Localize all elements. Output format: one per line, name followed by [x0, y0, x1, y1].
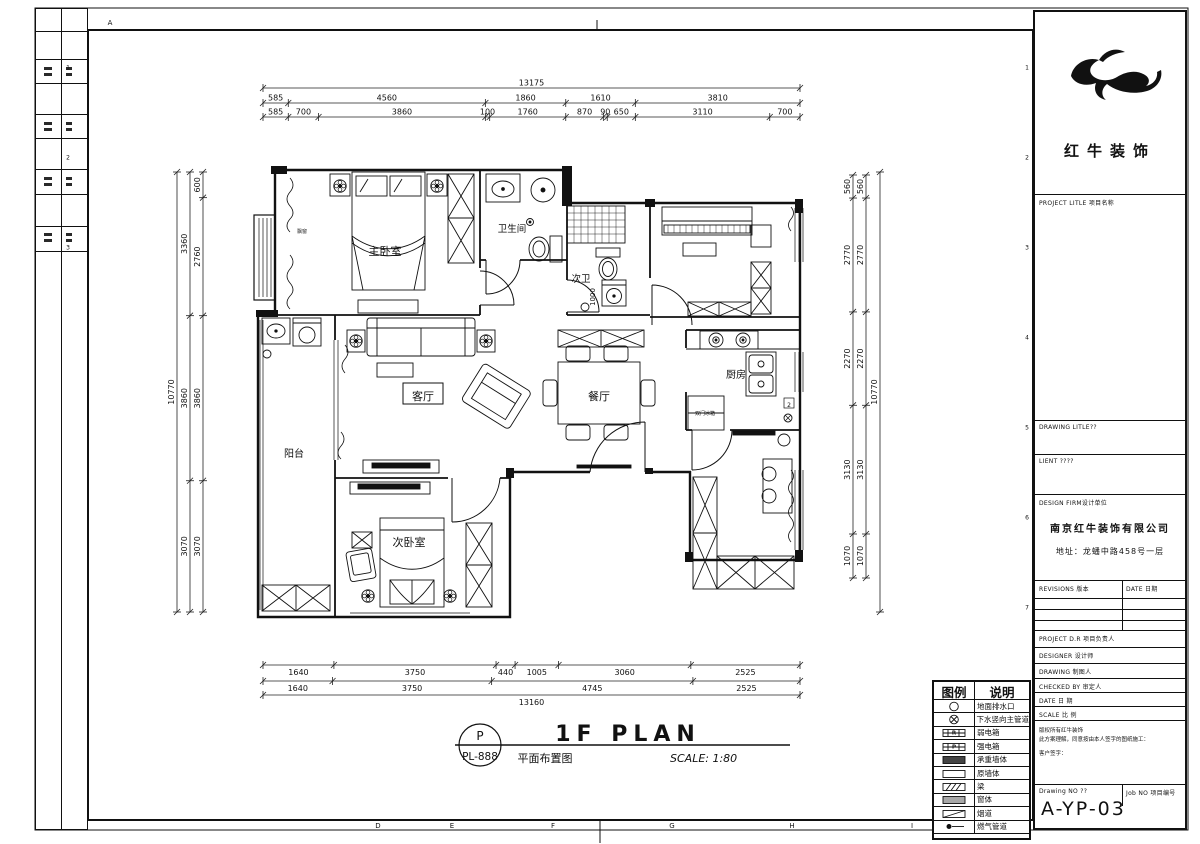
legend-row: 下水竖向主管道: [934, 713, 1029, 726]
dim-label: 10770: [167, 379, 176, 404]
shower-area: [567, 206, 625, 243]
legend-row: R弱电箱: [934, 727, 1029, 740]
dim-label: 1640: [288, 684, 308, 693]
terms-line-3: 客户签字：: [1039, 749, 1067, 757]
firm-address: 地址：龙蟠中路458号一层: [1035, 546, 1185, 557]
grid-letter-bottom: E: [450, 822, 454, 830]
title-block: 红牛装饰 PROJECT LITLE 项目名称 DRAWING LITLE?? …: [1033, 10, 1187, 830]
plan-title-en: 1F PLAN: [555, 722, 701, 747]
grid-number-right: 7: [1025, 605, 1029, 612]
legend-symbol-pipe-icon: [934, 713, 975, 725]
grid-number-right: 6: [1025, 515, 1029, 522]
drawing-no-label: Drawing NO ??: [1039, 788, 1087, 795]
tv-cabinet-living: [363, 460, 439, 473]
legend-row: 燃气管道: [934, 821, 1029, 834]
client-label: LIENT ????: [1039, 458, 1074, 465]
terms-line-1: 版权所有红牛装饰: [1039, 726, 1083, 734]
dim-label: 1070: [856, 546, 865, 566]
dim-label: 2270: [843, 348, 852, 368]
legend-label: 承重墙体: [975, 754, 1029, 765]
grid-letter-bottom: H: [789, 822, 794, 830]
grid-letter-top: A: [108, 19, 113, 27]
svg-text:P: P: [952, 744, 956, 750]
revisions-label: REVISIONS 版本: [1039, 584, 1089, 593]
armchair-2: [346, 548, 377, 582]
dim-label: 585: [268, 108, 283, 117]
legend-label: 原墙体: [975, 768, 1029, 779]
grid-letter-bottom: D: [375, 822, 380, 830]
dim-label: 3130: [843, 459, 852, 479]
daybed: [662, 207, 752, 235]
legend-label: 烟道: [975, 808, 1029, 819]
dim-label: 1610: [590, 94, 610, 103]
room-label: 卫生间: [498, 223, 527, 235]
grid-number-right: 5: [1025, 425, 1029, 432]
firm-name: 南京红牛装饰有限公司: [1035, 520, 1185, 535]
room-label: 餐厅: [588, 389, 610, 403]
room-label: 次卧室: [393, 535, 426, 549]
dim-label: 700: [777, 108, 792, 117]
plan-code-top: P: [476, 729, 483, 743]
dim-label: 650: [614, 108, 629, 117]
plan-annotation: 1000: [589, 288, 597, 306]
drawing-person-label: DRAWING 制图人: [1039, 667, 1091, 676]
dim-label: 1640: [288, 668, 308, 677]
room-label: 客厅: [412, 389, 434, 403]
legend-label: 强电箱: [975, 741, 1029, 752]
dim-label: 1860: [515, 94, 535, 103]
legend-header: 图例 说明: [934, 682, 1029, 700]
grid-number-right: 2: [1025, 155, 1029, 162]
dim-label: 3110: [692, 108, 712, 117]
legend-label: 地面排水口: [975, 701, 1029, 712]
dim-label: 3070: [193, 536, 202, 556]
drawing-number: A-YP-03: [1041, 798, 1126, 820]
plan-annotation: 双门冰箱: [695, 410, 715, 417]
svg-text:R: R: [952, 731, 957, 737]
legend-col-desc: 说明: [975, 682, 1029, 699]
grid-number-left: 1: [66, 65, 70, 72]
dim-label: 3860: [392, 108, 412, 117]
dim-label: 4745: [582, 684, 602, 693]
dim-label: 3810: [707, 94, 727, 103]
dim-label: 3860: [193, 388, 202, 408]
dim-label: 2770: [843, 245, 852, 265]
plan-scale: SCALE: 1:80: [670, 752, 737, 765]
washing-machine-2: [602, 280, 626, 306]
dim-label: 2270: [856, 348, 865, 368]
legend-row: 承重墙体: [934, 754, 1029, 767]
dim-label: 1070: [843, 546, 852, 566]
legend-symbol-solid-icon: [934, 754, 975, 766]
legend-symbol-win-icon: [934, 794, 975, 806]
dim-label: 1760: [518, 108, 538, 117]
dim-label: 2760: [193, 246, 202, 266]
dim-label: 13160: [519, 698, 544, 707]
checked-by-label: CHECKED BY 审定人: [1039, 682, 1102, 691]
plan-annotation: 飘窗: [297, 228, 307, 235]
drawing-title-label: DRAWING LITLE??: [1039, 424, 1097, 431]
legend-symbol-gas-icon: [934, 821, 975, 833]
grid-letter-bottom: F: [551, 822, 555, 830]
legend-row: 原墙体: [934, 767, 1029, 780]
master-bed: [352, 172, 425, 290]
grid-number-left: 3: [66, 245, 70, 252]
legend-label: 弱电箱: [975, 727, 1029, 738]
grid-number-right: 1: [1025, 65, 1029, 72]
dim-label: 560: [856, 179, 865, 194]
legend-row: 烟道: [934, 807, 1029, 820]
dim-label: 13175: [519, 79, 544, 88]
drawing-sheet: 1317558545601860161038105857003860100176…: [0, 0, 1200, 844]
legend-symbol-drain-icon: [934, 700, 975, 712]
legend-symbol-weak-icon: R: [934, 727, 975, 739]
dim-label: 100: [480, 108, 495, 117]
dim-label: 3750: [405, 668, 425, 677]
hall-cabinet: [558, 330, 644, 347]
date-label: DATE 日 期: [1039, 696, 1073, 705]
terms-line-2: 此方案理解，同意按由本人签字的图纸施工：: [1039, 735, 1149, 743]
grid-number-right: 3: [1025, 245, 1029, 252]
dim-label: 2525: [736, 684, 756, 693]
designer-label: DESIGNER 设计师: [1039, 651, 1094, 660]
company-name: 红牛装饰: [1035, 140, 1185, 161]
dim-label: 4560: [377, 94, 397, 103]
dim-label: 3360: [180, 234, 189, 254]
dim-label: 600: [193, 177, 202, 192]
bathroom-fixtures: [486, 174, 562, 262]
legend-symbol-strong-icon: P: [934, 740, 975, 752]
project-title-label: PROJECT LITLE 项目名称: [1039, 198, 1114, 207]
side-table-2: [352, 532, 372, 548]
legend-table: 图例 说明 地面排水口下水竖向主管道R弱电箱P强电箱承重墙体原墙体梁窗体烟道燃气…: [932, 680, 1031, 840]
dim-label: 870: [577, 108, 592, 117]
legend-label: 梁: [975, 781, 1029, 792]
dim-label: 700: [296, 108, 311, 117]
dim-label: 440: [498, 668, 513, 677]
plan-code-bottom: PL-888: [462, 751, 498, 763]
wardrobe-topright: [688, 262, 771, 316]
wardrobe-master: [448, 174, 474, 263]
legend-row: 地面排水口: [934, 700, 1029, 713]
legend-label: 下水竖向主管道: [975, 714, 1030, 725]
floor-drain: [263, 350, 271, 358]
dim-label: 3130: [856, 459, 865, 479]
sewer-pipe-symbol: [784, 414, 792, 422]
exterior-walls: [258, 170, 800, 617]
coffee-table: [377, 363, 413, 377]
legend-symbol-beam-icon: [934, 780, 975, 792]
dim-label: 3860: [180, 388, 189, 408]
armchair: [461, 363, 532, 430]
dim-label: 560: [843, 179, 852, 194]
bed-2: [380, 518, 444, 607]
legend-row: 梁: [934, 780, 1029, 793]
legend-label: 窗体: [975, 794, 1029, 805]
dim-label: 1005: [527, 668, 547, 677]
dim-label: 2770: [856, 245, 865, 265]
job-no-label: Job NO 项目编号: [1126, 788, 1176, 797]
dim-label: 3060: [614, 668, 634, 677]
scale-label: SCALE 比 例: [1039, 710, 1077, 719]
legend-row: P强电箱: [934, 740, 1029, 753]
design-firm-label: DESIGN FIRM设计单位: [1039, 498, 1107, 507]
room-label: 主卧室: [369, 244, 402, 258]
plan-annotation: 2: [787, 402, 791, 409]
dresser: [358, 300, 418, 313]
dim-label: 2525: [735, 668, 755, 677]
revisions-date-label: DATE 日期: [1126, 584, 1158, 593]
balcony-fixtures: [262, 318, 330, 611]
toilet-2: [596, 248, 620, 280]
room-label: 厨房: [726, 368, 746, 381]
sofa: [367, 318, 475, 356]
legend-symbol-flue-icon: [934, 807, 975, 819]
grid-number-left: 2: [66, 155, 70, 162]
legend-col-symbol: 图例: [934, 682, 975, 699]
room-labels: 主卧室卫生间次卫客厅餐厅厨房阳台次卧室飘窗双门冰箱10002: [284, 223, 794, 549]
floor-drain: [581, 303, 589, 311]
tv-cabinet-bedroom2: [350, 482, 430, 494]
binding-strip: [35, 8, 88, 830]
sheet-title: P PL-888 1F PLAN 平面布置图 SCALE: 1:80: [455, 722, 790, 766]
legend-label: 燃气管道: [975, 821, 1029, 832]
grid-letter-bottom: G: [669, 822, 674, 830]
study-furniture: [693, 431, 794, 589]
company-logo-icon: [1035, 26, 1185, 136]
furniture: [262, 172, 800, 611]
legend-row: 窗体: [934, 794, 1029, 807]
dim-label: 3750: [402, 684, 422, 693]
cabinet: [751, 225, 771, 247]
room-label: 阳台: [284, 447, 304, 460]
small-table: [683, 243, 716, 256]
dim-label: 10770: [870, 379, 879, 404]
dim-label: 3070: [180, 536, 189, 556]
project-dir-label: PROJECT D.R 项目负责人: [1039, 634, 1115, 643]
dim-label: 90: [600, 108, 610, 117]
dim-label: 585: [268, 94, 283, 103]
plan-title-cn: 平面布置图: [518, 752, 573, 765]
wardrobe-bedroom2: [466, 523, 492, 607]
threshold: [577, 465, 631, 468]
grid-letter-bottom: I: [911, 822, 913, 830]
room-label: 次卫: [571, 273, 591, 285]
legend-symbol-orig-icon: [934, 767, 975, 779]
grid-number-right: 4: [1025, 335, 1029, 342]
